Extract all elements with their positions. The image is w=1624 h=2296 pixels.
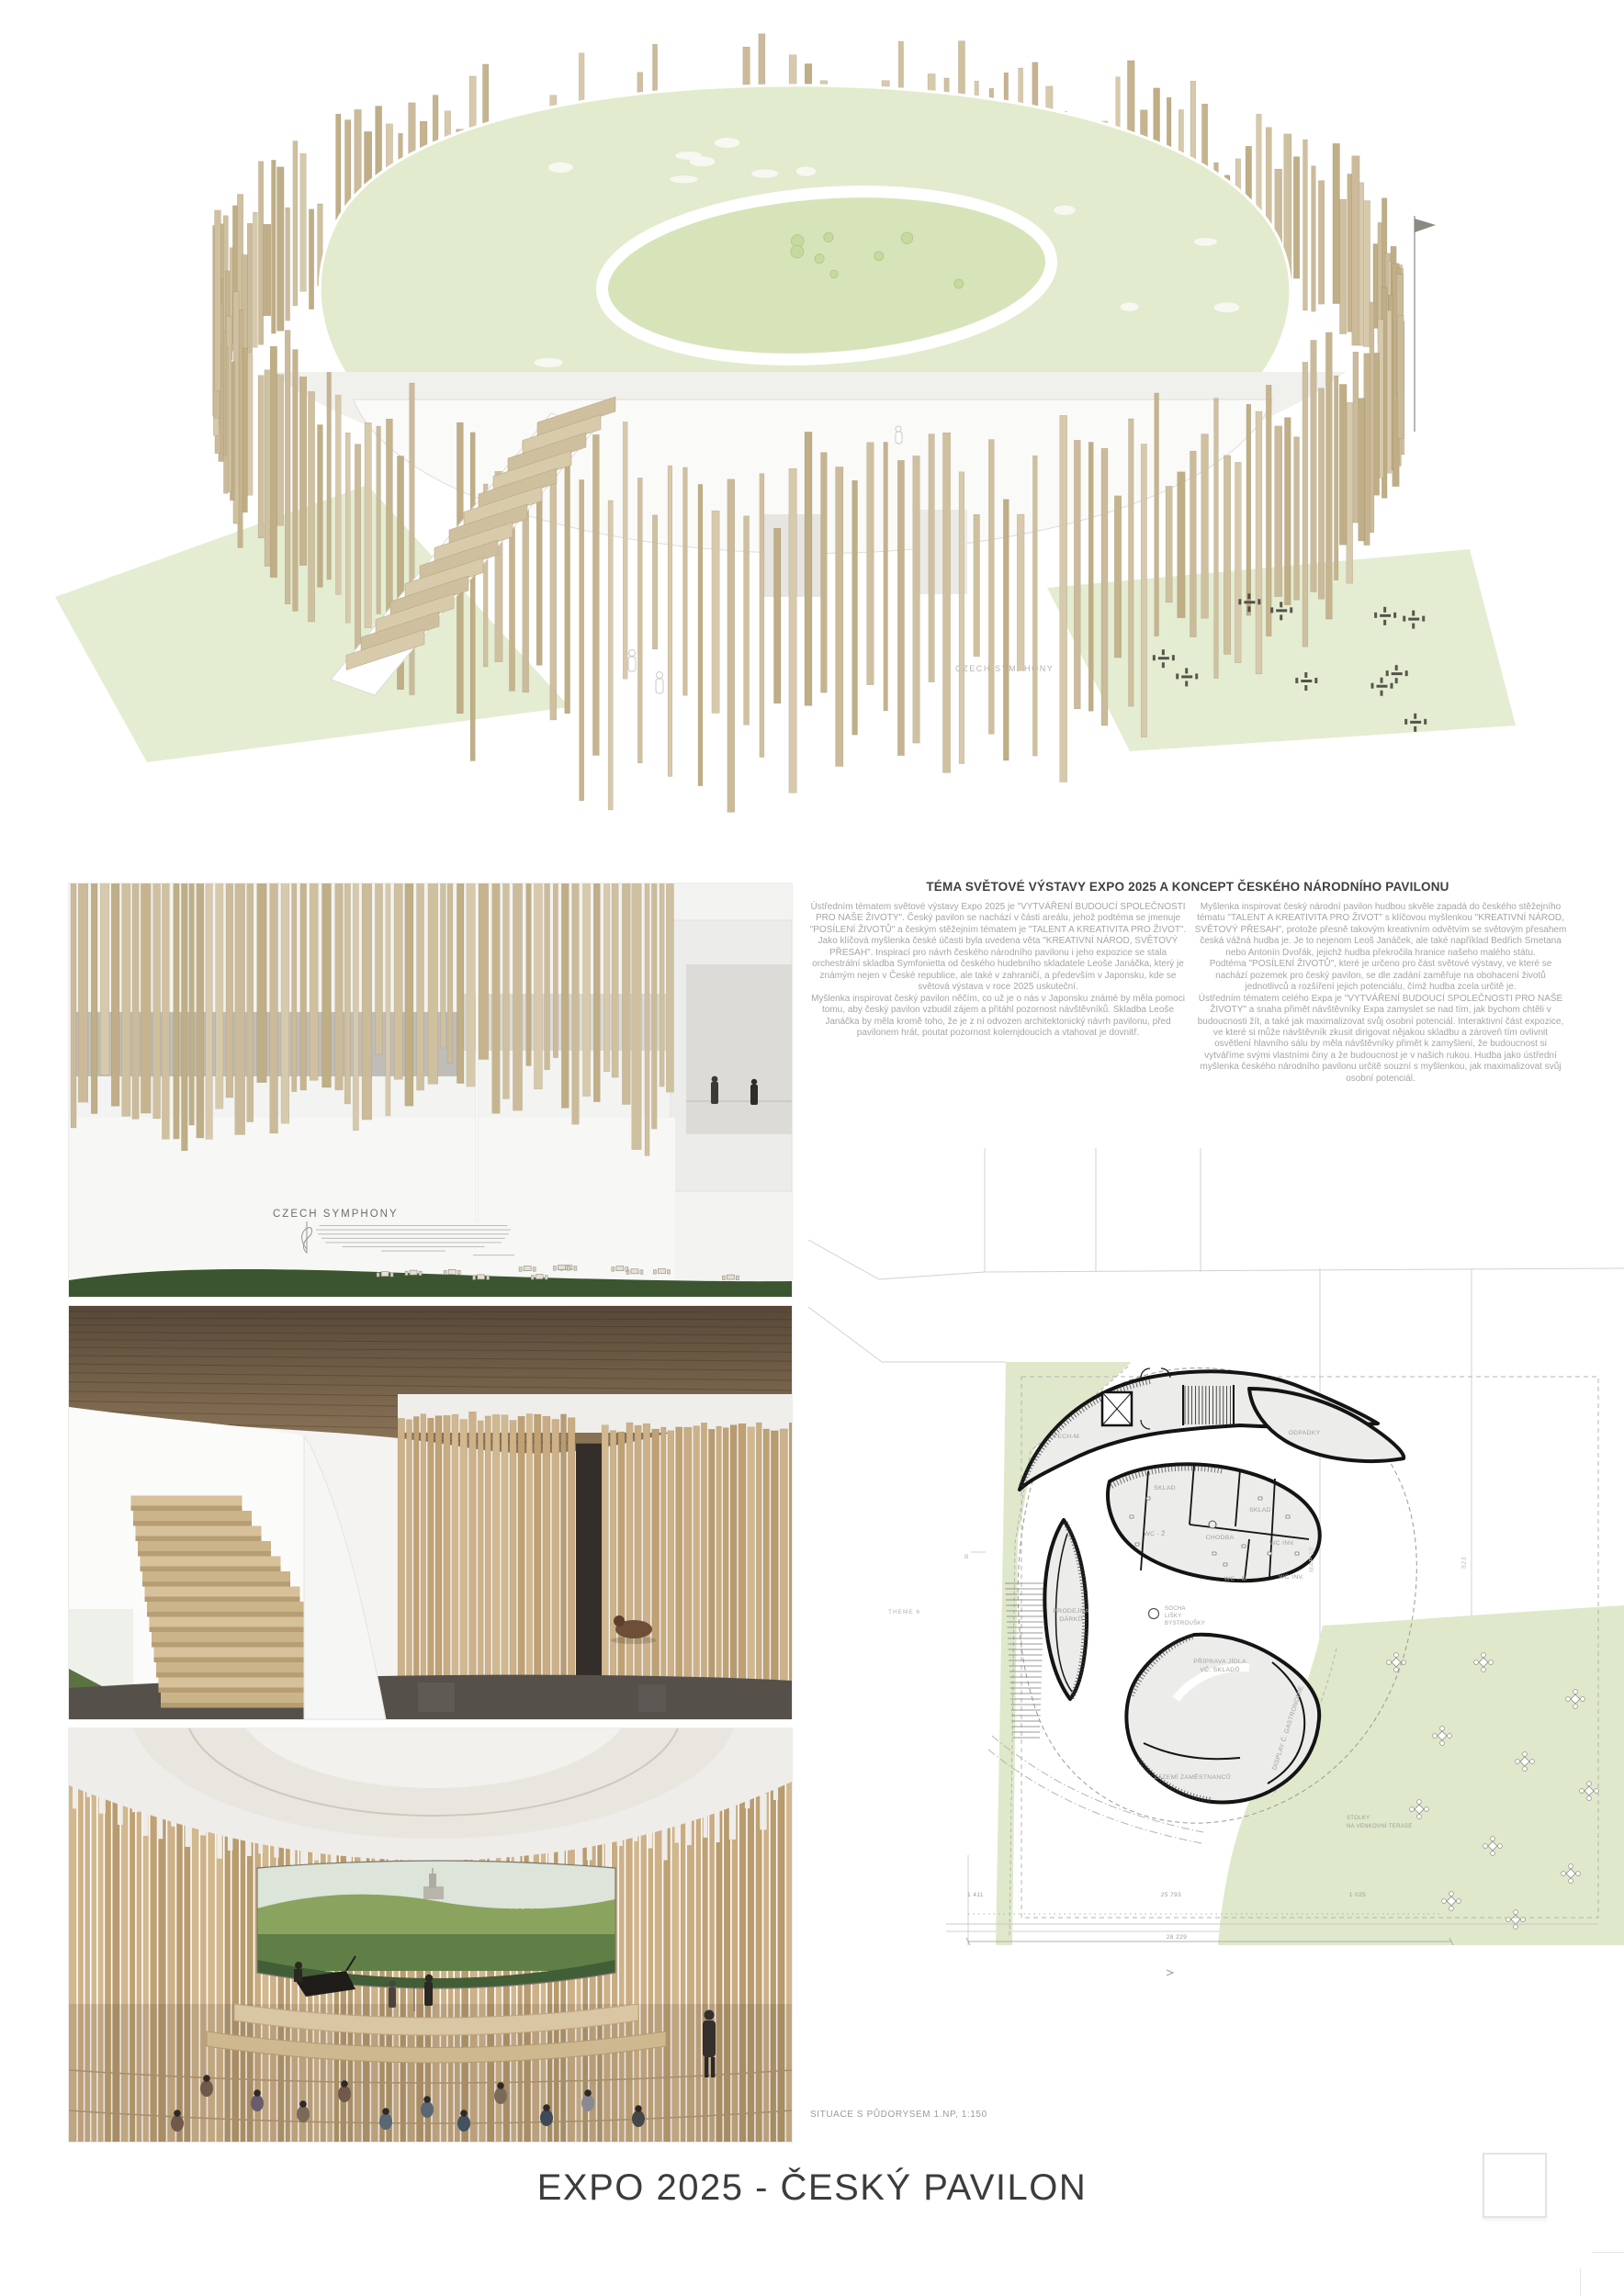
- label-prodejna-2: DÁRKŮ: [1059, 1615, 1082, 1623]
- label-zazemi: ZÁZEMÍ ZAMĚSTNANCŮ: [1154, 1773, 1231, 1781]
- label-sklad2: SKLAD: [1249, 1507, 1271, 1514]
- paragraph: Myšlenka inspirovat český národní pavilo…: [1194, 902, 1567, 959]
- legend-line2: LIŠKY: [1165, 1613, 1182, 1619]
- paragraph: Ústředním tématem celého Expa je "VYTVÁŘ…: [1194, 994, 1567, 1086]
- plan-legend-statue: SOCHA LIŠKY BYSTROUŠKY: [1149, 1606, 1206, 1626]
- terrace-line1: STOLKY: [1347, 1816, 1370, 1821]
- r1-right-wing: [671, 920, 792, 1191]
- label-odpadky: ODPADKY: [1289, 1430, 1321, 1436]
- label-prodejna-1: PRODEJNA: [1053, 1608, 1089, 1615]
- dim-1: 1 411: [967, 1892, 984, 1898]
- article-column-left: Ústředním tématem světové výstavy Expo 2…: [808, 902, 1188, 1085]
- label-wc-m: WC - M: [1224, 1576, 1247, 1582]
- dim-2: 25 793: [1161, 1892, 1181, 1898]
- label-priprava-1: PŘÍPRAVA JÍDLA: [1193, 1657, 1246, 1665]
- label-wc-z: WC - Ž: [1144, 1529, 1165, 1537]
- r2-slat-wall-center: [398, 1412, 575, 1706]
- r1-flagpole: [476, 884, 479, 1221]
- corner-crop-mark-v: [1580, 2268, 1581, 2296]
- article-heading: TÉMA SVĚTOVÉ VÝSTAVY EXPO 2025 A KONCEPT…: [808, 880, 1567, 894]
- concept-text-block: TÉMA SVĚTOVÉ VÝSTAVY EXPO 2025 A KONCEPT…: [808, 880, 1567, 1085]
- poster-title: EXPO 2025 - ČESKÝ PAVILON: [0, 2167, 1624, 2209]
- presentation-board: CZECH SYMPHONY: [0, 0, 1624, 2296]
- corner-logo-box: [1483, 2153, 1547, 2218]
- plan-lot-label-b: 823: [1461, 1557, 1468, 1569]
- label-sklad1: SKLAD: [1154, 1485, 1176, 1491]
- hero-flag-pole: [1415, 216, 1436, 432]
- paragraph: Ústředním tématem světové výstavy Expo 2…: [808, 902, 1188, 994]
- plan-marker-b: B: [964, 1554, 969, 1560]
- r1-wall: [69, 1118, 675, 1283]
- legend-line3: BYSTROUŠKY: [1165, 1620, 1205, 1626]
- r2-slat-wall-right: [602, 1423, 792, 1701]
- r2-floor-reflection: [418, 1683, 455, 1712]
- render-interior-stairs-photo: [69, 1306, 792, 1719]
- r1-wall-sign: CZECH SYMPHONY: [273, 1209, 399, 1220]
- terrace-line2: NA VENKOVNÍ TERASE: [1347, 1823, 1413, 1829]
- dim-3: 1 025: [1349, 1892, 1366, 1898]
- label-chodba: CHODBA: [1206, 1535, 1235, 1541]
- label-tech: TECH-M.: [1054, 1434, 1081, 1440]
- article-column-right: Myšlenka inspirovat český národní pavilo…: [1194, 902, 1567, 1085]
- paragraph: Podtéma "POSÍLENÍ ŽIVOTŮ", které je urče…: [1194, 959, 1567, 993]
- dim-total: 28 229: [1167, 1934, 1187, 1941]
- plan-lot-label-a: MAP 10: [1309, 1547, 1315, 1572]
- paragraph: Myšlenka inspirovat český pavilon něčím,…: [808, 994, 1188, 1040]
- plan-statue-circle: [1209, 1521, 1216, 1528]
- render-auditorium-photo: [69, 1728, 792, 2142]
- site-plan-drawing: TECH-M. ODPADKY SKLAD WC - Ž CHODBA SKLA…: [808, 1148, 1624, 2122]
- plan-street-label: THEME 6: [888, 1609, 920, 1615]
- plan-caption: SITUACE S PŮDORYSEM 1.NP, 1:150: [810, 2108, 987, 2120]
- legend-line1: SOCHA: [1165, 1606, 1186, 1612]
- plan-north-mark: [1167, 1970, 1173, 1975]
- corner-crop-mark-h: [1592, 2252, 1624, 2253]
- hero-axonometric-render: CZECH SYMPHONY: [37, 5, 1589, 877]
- render-exterior-photo: CZECH SYMPHONY: [69, 884, 792, 1297]
- label-wc-inv1: WC INV.: [1269, 1540, 1295, 1547]
- r2-doorway: [576, 1444, 602, 1703]
- label-priprava-2: VČ. SKLADŮ: [1200, 1665, 1239, 1673]
- r2-floor-reflection2: [638, 1684, 666, 1712]
- label-wc-inv2: WC INV.: [1279, 1574, 1304, 1581]
